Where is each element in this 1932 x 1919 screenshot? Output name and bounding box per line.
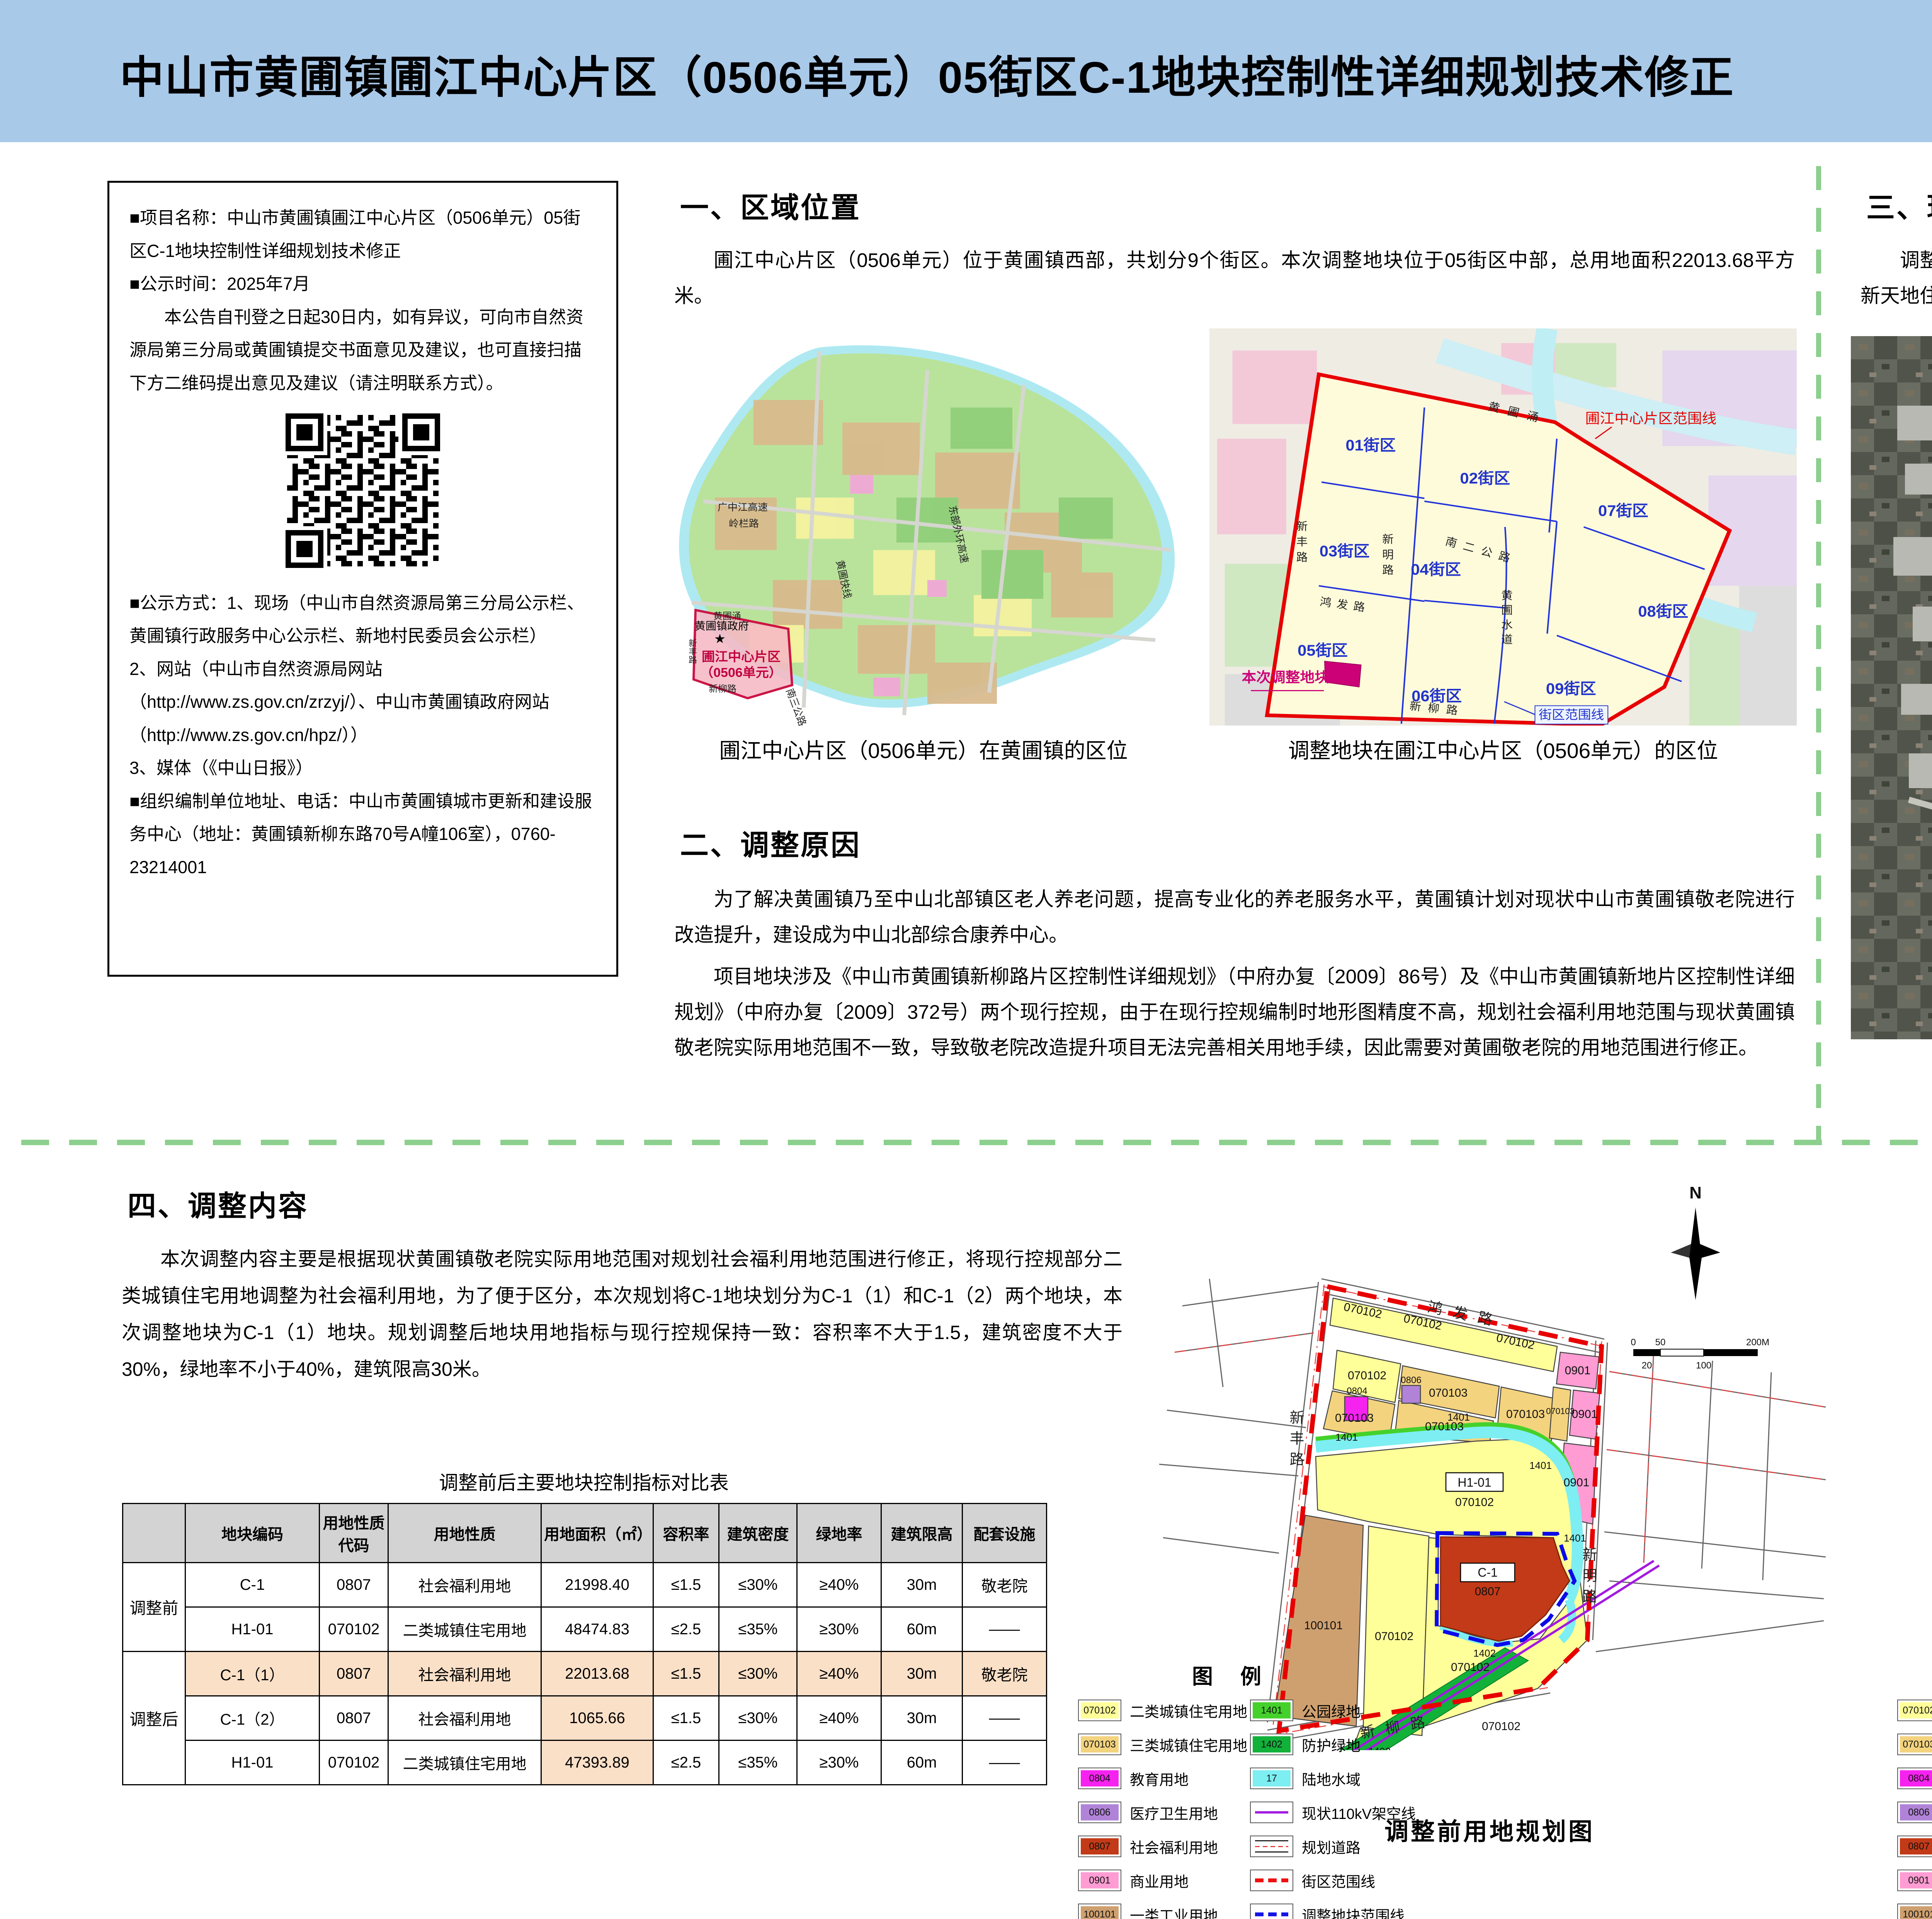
boundary-label: 圃江中心片区范围线 [1585, 411, 1717, 426]
svg-text:岭栏路: 岭栏路 [729, 518, 759, 529]
svg-text:黄圃涌: 黄圃涌 [713, 611, 741, 622]
table-header-row: 地块编码用地性质代码 用地性质用地面积（㎡）容积率 建筑密度绿地率建筑限高 配套… [123, 1504, 1047, 1563]
svg-text:0807: 0807 [1475, 1585, 1501, 1598]
table-title: 调整前后主要地块控制指标对比表 [122, 1467, 1046, 1495]
group-after: 调整后 [123, 1652, 185, 1785]
district-name-label: 圃江中心片区 [702, 650, 781, 664]
after-map-caption: 调整后用地规划图 [1917, 1812, 1932, 1847]
notice-channels-2: 2、网站（中山市自然资源局网站（http://www.zs.gov.cn/zrz… [129, 653, 596, 752]
legend-blue-dash [1250, 1904, 1293, 1919]
section2-paragraph-2: 项目地块涉及《中山市黄圃镇新柳路片区控制性详细规划》（中府办复〔2009〕86号… [674, 959, 1795, 1065]
qr-code [282, 410, 444, 572]
road-label: 广中江高速 [718, 502, 768, 513]
district-blocks-map: 01街区 02街区 03街区 04街区 05街区 06街区 07街区 08街区 … [1209, 328, 1797, 726]
section3-heading: 三、现状概况 [1866, 185, 1932, 226]
svg-text:03街区: 03街区 [1320, 542, 1370, 560]
legend-title: 图 例 [1192, 1659, 1519, 1690]
table-row: H1-01070102二类城镇住宅用地 47393.89≤2.5≤35% ≥30… [123, 1741, 1047, 1785]
notice-period: ■公示时间：2025年7月 [129, 267, 596, 301]
town-locator-map: 黄圃镇政府 ★ 圃江中心片区 （0506单元） 广中江高速 岭栏路 黄圃快线 东… [657, 340, 1190, 726]
legend-after: 图 例 070102二类城镇住宅用地 070103三类城镇住宅用地 0804教育… [1897, 1659, 1932, 1697]
svg-text:（0506单元）: （0506单元） [700, 666, 782, 680]
group-before: 调整前 [123, 1563, 185, 1652]
notice-instruction: 本公告自刊登之日起30日内，如有异议，可向市自然资源局第三分局或黄圃镇提交书面意… [129, 301, 596, 400]
vertical-divider [1816, 166, 1821, 1142]
svg-text:新丰路: 新丰路 [687, 639, 697, 664]
section2-paragraph-1: 为了解决黄圃镇乃至中山北部镇区老人养老问题，提高专业化的养老服务水平，黄圃镇计划… [674, 882, 1795, 953]
notice-info-box: ■项目名称：中山市黄圃镇圃江中心片区（0506单元）05街区C-1地块控制性详细… [107, 181, 618, 977]
svg-text:新丰路: 新丰路 [1294, 520, 1307, 567]
svg-text:08街区: 08街区 [1638, 603, 1688, 620]
page-title: 中山市黄圃镇圃江中心片区（0506单元）05街区C-1地块控制性详细规划技术修正 [120, 42, 1932, 105]
indicator-comparison-table: 地块编码用地性质代码 用地性质用地面积（㎡）容积率 建筑密度绿地率建筑限高 配套… [122, 1503, 1047, 1785]
svg-text:09街区: 09街区 [1546, 680, 1596, 697]
svg-text:新柳路: 新柳路 [709, 684, 736, 694]
table-row: C-1（2）0807社会福利用地 1065.66≤1.5≤30% ≥40%30m… [123, 1696, 1047, 1741]
horizontal-divider [21, 1140, 1932, 1145]
adjust-plot [1325, 661, 1361, 687]
public-notice-poster: 070102 070102 070102 070102 070102 07010… [0, 0, 1932, 1919]
district-map-caption: 调整地块在圃江中心片区（0506单元）的区位 [1209, 733, 1797, 764]
svg-text:新明路: 新明路 [1381, 533, 1393, 580]
table-row: 调整前 C-10807社会福利用地 21998.40≤1.5≤30% ≥40%3… [123, 1563, 1047, 1607]
satellite-image: 新丰路 新明路 新柳路 本次调整地块 黄圃敬老院 新地卫生服务站 荔园新天地 黄… [1851, 336, 1932, 1039]
notice-channels-3: 3、媒体（《中山日报》） [129, 751, 596, 785]
project-name: ■项目名称：中山市黄圃镇圃江中心片区（0506单元）05街区C-1地块控制性详细… [129, 201, 596, 267]
section2-heading: 二、调整原因 [680, 822, 861, 863]
table-row: H1-01070102二类城镇住宅用地 48474.83≤2.5≤35% ≥30… [123, 1607, 1047, 1652]
notice-contact: ■组织编制单位地址、电话：中山市黄圃镇城市更新和建设服务中心（地址：黄圃镇新柳东… [129, 785, 596, 884]
svg-text:04街区: 04街区 [1411, 561, 1461, 578]
block-label: 01街区 [1345, 437, 1396, 454]
legend-before: 图 例 070102二类城镇住宅用地 070103三类城镇住宅用地 0804教育… [1078, 1659, 1519, 1697]
table-row-highlighted: 调整后 C-1（1）0807社会福利用地 22013.68≤1.5≤30% ≥4… [123, 1652, 1047, 1696]
section4-paragraph: 本次调整内容主要是根据现状黄圃镇敬老院实际用地范围对规划社会福利用地范围进行修正… [122, 1241, 1122, 1388]
blockline-label: 街区范围线 [1539, 708, 1604, 722]
section3-paragraph: 调整地块现状为黄圃镇敬老院，地块西侧为现状道路，东侧为新地卫生服务站，南侧为荔园… [1861, 243, 1932, 314]
svg-text:05街区: 05街区 [1298, 642, 1348, 659]
section1-paragraph: 圃江中心片区（0506单元）位于黄圃镇西部，共划分9个街区。本次调整地块位于05… [674, 243, 1795, 314]
svg-text:07街区: 07街区 [1598, 502, 1648, 519]
c1-label-before: C-1 [1478, 1565, 1498, 1579]
town-map-caption: 圃江中心片区（0506单元）在黄圃镇的区位 [657, 733, 1190, 764]
svg-text:02街区: 02街区 [1460, 469, 1510, 487]
gov-star-icon: ★ [714, 632, 726, 646]
section4-heading: 四、调整内容 [128, 1183, 308, 1224]
adjust-plot-label: 本次调整地块 [1242, 670, 1329, 685]
legend-red-dash [1250, 1870, 1293, 1891]
svg-text:黄圃水道: 黄圃水道 [1500, 590, 1512, 649]
section1-heading: 一、区域位置 [680, 185, 861, 226]
notice-channels-1: ■公示方式：1、现场（中山市自然资源局第三分局公示栏、黄圃镇行政服务中心公示栏、… [129, 586, 596, 653]
header-bar: 中山市黄圃镇圃江中心片区（0506单元）05街区C-1地块控制性详细规划技术修正… [0, 0, 1932, 142]
satellite-caption: 现状卫星图 [1851, 1050, 1932, 1081]
legend-swatch: 070102 [1078, 1700, 1121, 1721]
town-gov-label: 黄圃镇政府 [695, 620, 749, 632]
before-map-caption: 调整前用地规划图 [1151, 1812, 1828, 1847]
